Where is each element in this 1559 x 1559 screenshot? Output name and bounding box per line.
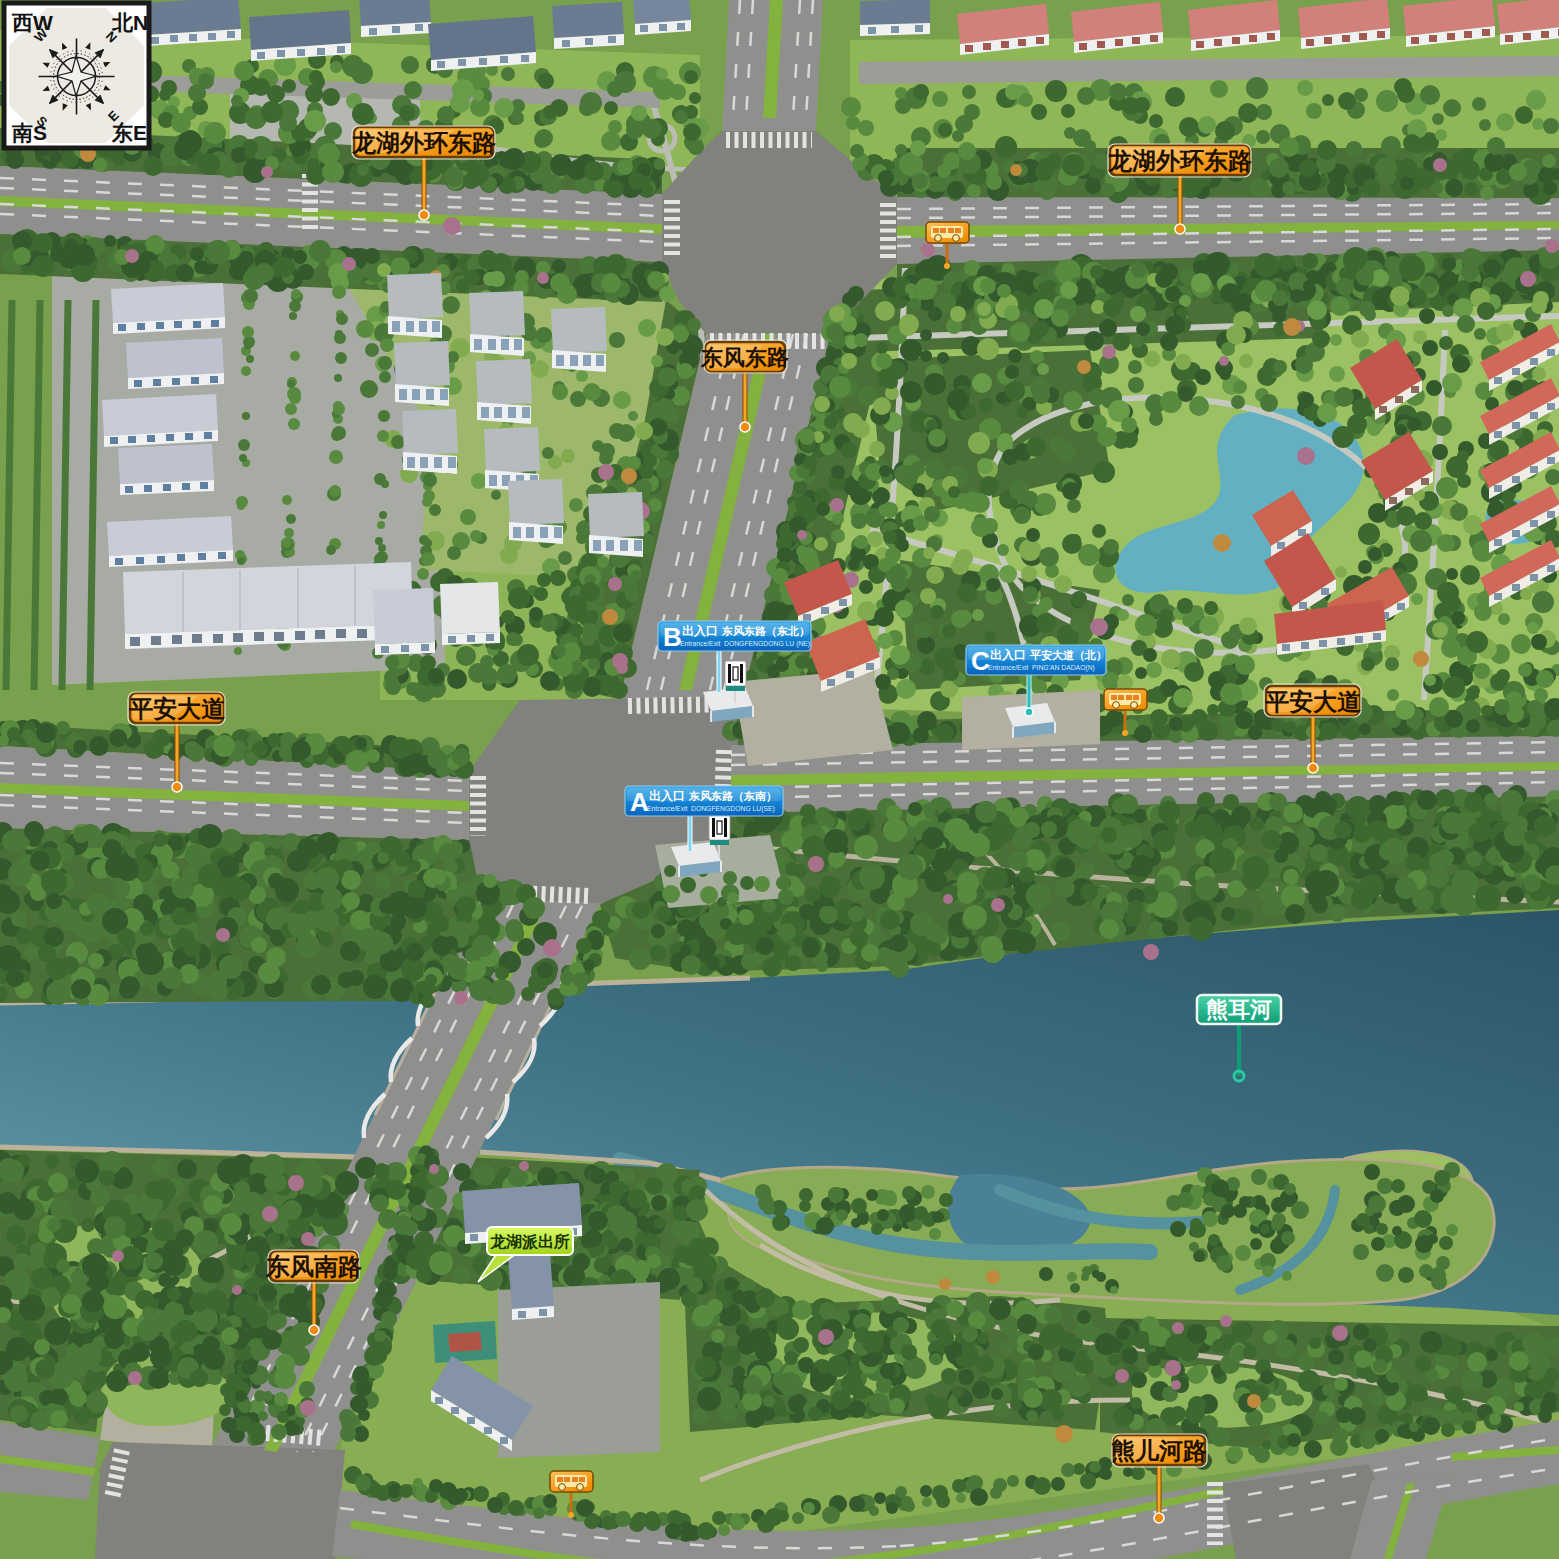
svg-text:龙湖外环东路: 龙湖外环东路 (351, 129, 496, 156)
svg-text:龙湖派出所: 龙湖派出所 (489, 1233, 570, 1251)
svg-text:Entrance/Exit: Entrance/Exit (680, 640, 721, 647)
svg-text:B: B (663, 622, 682, 652)
svg-text:DONGFENGDONG LU(SE): DONGFENGDONG LU(SE) (691, 805, 775, 813)
svg-text:出入口: 出入口 (682, 624, 718, 638)
svg-text:熊耳河: 熊耳河 (1206, 997, 1272, 1022)
svg-text:西W: 西W (11, 11, 53, 34)
svg-text:东风东路（东南）: 东风东路（东南） (688, 790, 777, 803)
svg-text:平安大道: 平安大道 (1265, 688, 1362, 715)
svg-text:平安大道: 平安大道 (129, 695, 226, 722)
svg-text:Entrance/Exit: Entrance/Exit (988, 664, 1029, 671)
svg-text:熊儿河路: 熊儿河路 (1111, 1437, 1207, 1464)
svg-text:C: C (971, 646, 990, 676)
svg-text:PING'AN DADAO(N): PING'AN DADAO(N) (1032, 664, 1095, 672)
svg-text:Entrance/Exit: Entrance/Exit (647, 805, 688, 812)
svg-text:东风南路: 东风南路 (265, 1253, 362, 1280)
svg-text:平安大道（北）: 平安大道（北） (1030, 649, 1107, 662)
svg-text:东E: 东E (111, 121, 147, 144)
svg-text:A: A (630, 787, 649, 817)
svg-text:DONGFENGDONG LU (NE): DONGFENGDONG LU (NE) (724, 640, 810, 648)
svg-text:出入口: 出入口 (649, 789, 685, 803)
svg-text:东风东路（东北）: 东风东路（东北） (721, 625, 810, 638)
svg-text:龙湖外环东路: 龙湖外环东路 (1107, 147, 1252, 174)
svg-text:出入口: 出入口 (990, 648, 1026, 662)
svg-text:东风东路: 东风东路 (700, 345, 789, 370)
